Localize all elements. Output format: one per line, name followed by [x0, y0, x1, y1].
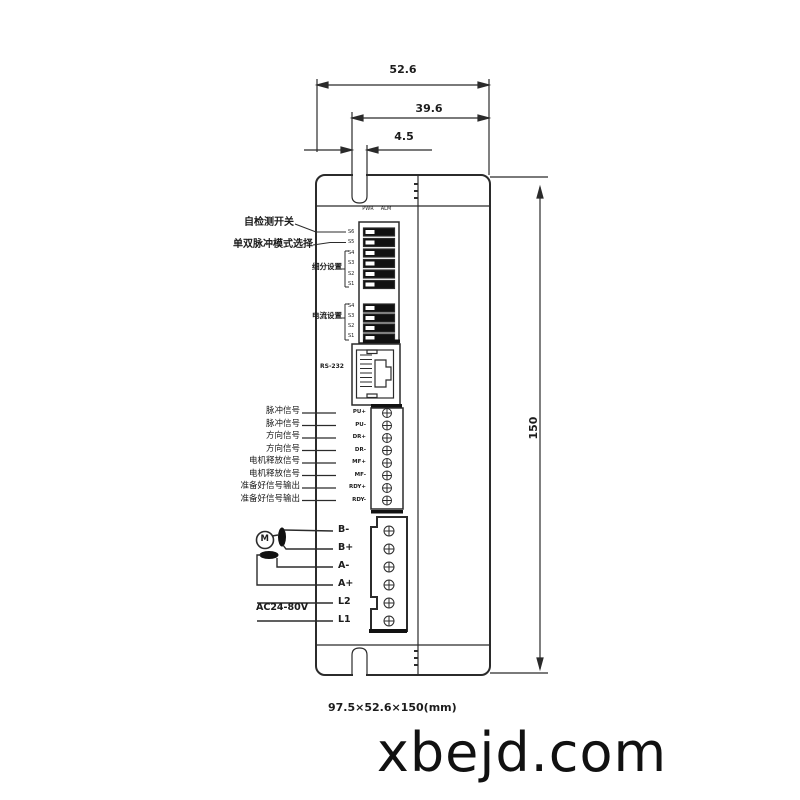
dip-label-s2: S2	[348, 272, 354, 278]
signal-label: 方向信号	[240, 445, 300, 454]
signal-label: 准备好信号输出	[240, 482, 300, 491]
dip-label-s3: S3	[348, 261, 354, 267]
pin-label: RDY-	[336, 497, 366, 503]
dim-mid-width-label: 39.6	[409, 103, 449, 115]
power-pin-label: A-	[338, 561, 349, 571]
signal-label: 电机释放信号	[240, 470, 300, 479]
power-pin-label: B+	[338, 543, 353, 553]
dip-lower-label-s2: S2	[348, 324, 354, 330]
ac-input-label: AC24-80V	[256, 603, 308, 613]
signal-label: 方向信号	[240, 432, 300, 441]
pin-label: DR-	[336, 447, 366, 453]
microstep-setting-label: 细分设置	[312, 263, 342, 271]
overall-size-text: 97.5×52.6×150(mm)	[328, 702, 448, 714]
dim-height-label: 150	[528, 408, 540, 448]
led-alm-label: ALM	[379, 207, 393, 213]
power-pin-label: L1	[338, 615, 351, 625]
watermark-text: xbejd.com	[372, 723, 672, 782]
dip-lower-label-s3: S3	[348, 314, 354, 320]
dip-label-s1: S1	[348, 282, 354, 288]
led-pwr-label: PWR	[361, 207, 375, 213]
pin-label: RDY+	[336, 484, 366, 490]
dip-lower-label-s1: S1	[348, 334, 354, 340]
pulse-mode-label: 单双脉冲模式选择	[231, 239, 313, 250]
dip-switch-block	[359, 222, 399, 343]
pin-label: PU-	[336, 422, 366, 428]
pin-label: DR+	[336, 434, 366, 440]
power-pin-label: A+	[338, 579, 353, 589]
rs232-label: RS-232	[320, 364, 344, 371]
signal-label: 准备好信号输出	[240, 495, 300, 504]
pin-label: MF-	[336, 472, 366, 478]
power-pin-label: B-	[338, 525, 349, 535]
current-setting-label: 电流设置	[312, 312, 342, 320]
power-pin-label: L2	[338, 597, 351, 607]
dip-label-s6: S6	[348, 230, 354, 236]
driver-dimension-diagram: 52.6 39.6 4.5 150 PWR ALM S6 S5 S4 S3 S2…	[0, 0, 800, 800]
dip-label-s4: S4	[348, 251, 354, 257]
pin-label: PU+	[336, 409, 366, 415]
dip-lower-label-s4: S4	[348, 304, 354, 310]
dim-slot-width-label: 4.5	[384, 131, 424, 143]
signal-label: 脉冲信号	[240, 407, 300, 416]
pin-label: MF+	[336, 459, 366, 465]
motor-symbol-label: M	[261, 535, 269, 544]
line-art	[0, 0, 800, 800]
signal-label: 脉冲信号	[240, 420, 300, 429]
dimension-52-6	[317, 79, 489, 175]
dimension-4-5	[304, 147, 432, 153]
signal-label: 电机释放信号	[240, 457, 300, 466]
dimension-39-6	[352, 115, 489, 121]
self-test-switch-label: 自检测开关	[242, 217, 294, 228]
dip-label-s5: S5	[348, 240, 354, 246]
dim-top-width-label: 52.6	[383, 64, 423, 76]
